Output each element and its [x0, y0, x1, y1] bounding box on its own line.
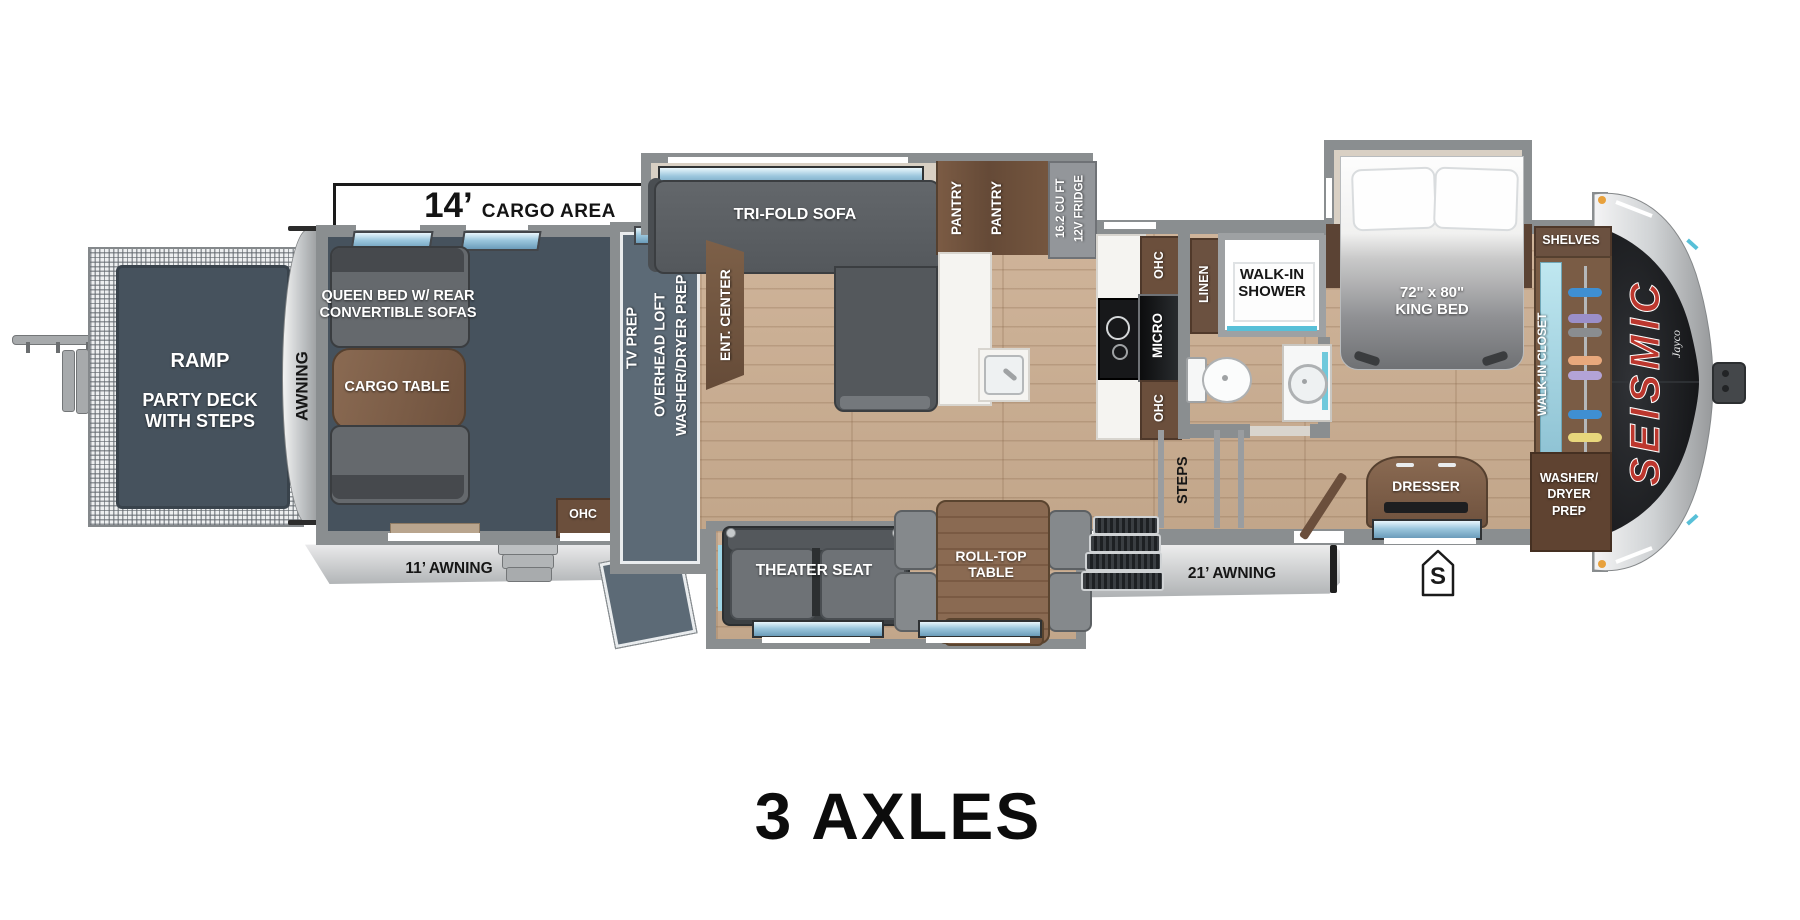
party-deck — [116, 265, 290, 509]
dresser-tv — [1384, 502, 1468, 513]
entry-step — [1093, 516, 1159, 535]
bedroom-window-sill — [1384, 538, 1476, 544]
garage-window-sill — [356, 224, 420, 230]
cargo-area-feet: 14’ — [424, 186, 473, 226]
slideout-window-sill — [762, 637, 870, 643]
bed-pillow — [1351, 167, 1437, 232]
pantry-label-2: PANTRY — [986, 166, 1008, 250]
bath-door-threshold — [1250, 426, 1310, 436]
hitch-pin-bolt — [1722, 385, 1729, 392]
bath-wall-left — [1178, 231, 1190, 439]
overhead-loft-label: OVERHEAD LOFT WASHER/DRYER PREP — [648, 245, 696, 465]
linen-label: LINEN — [1191, 240, 1217, 328]
page-title: 3 AXLES — [648, 780, 1148, 853]
hanger — [1568, 356, 1602, 365]
hanger — [1568, 433, 1602, 442]
sofa-window-sill — [668, 157, 908, 163]
top-wall-window — [1104, 222, 1156, 229]
hitch-pin-bolt — [1722, 370, 1729, 377]
rear-awning-cap-top — [288, 226, 318, 231]
party-deck-label: PARTY DECK WITH STEPS — [114, 390, 286, 431]
garage-step-tread — [506, 567, 552, 582]
kitchen-ohc-top-label: OHC — [1142, 238, 1176, 292]
s-marker-letter: S — [1430, 563, 1446, 590]
s-marker: S — [1420, 548, 1456, 598]
dinette-chair — [894, 510, 938, 570]
garage-window-sill — [466, 224, 528, 230]
pantry-label-1: PANTRY — [946, 166, 968, 250]
shower-label: WALK-IN SHOWER — [1225, 267, 1319, 300]
interior-step-riser — [1238, 430, 1244, 528]
accent-dash — [1686, 238, 1698, 250]
bed-slideout-window — [1326, 178, 1332, 218]
tri-fold-sofa-seat — [654, 180, 940, 274]
hanger — [1568, 410, 1602, 419]
bed-pillow — [1433, 167, 1519, 232]
interior-step-riser — [1214, 430, 1220, 528]
awning-21-label: 21’ AWNING — [1172, 565, 1292, 582]
slideout-window — [918, 620, 1042, 638]
bath-wall-bottom — [1310, 424, 1330, 438]
brand-sub-logo: Jayco — [1669, 330, 1683, 358]
dresser-handle — [1396, 463, 1414, 467]
floorplan-canvas: 14’ CARGO AREA RAMP PARTY DECK WITH STEP… — [0, 0, 1800, 920]
ramp-label: RAMP — [120, 350, 280, 373]
convertible-sofa-bottom-front — [332, 475, 464, 499]
entry-step — [1081, 571, 1164, 591]
ent-center-label: ENT. CENTER — [708, 252, 742, 378]
king-bed-label: 72" x 80" KING BED — [1384, 284, 1480, 319]
convertible-sofa-top-back — [332, 248, 464, 272]
stove-burner — [1106, 316, 1130, 340]
hitch-pin — [1712, 362, 1746, 404]
theater-seat-label: THEATER SEAT — [736, 562, 892, 580]
kitchen-ohc-bottom-label: OHC — [1142, 382, 1176, 434]
accent-dash — [1686, 514, 1698, 526]
theater-seat-back — [728, 530, 900, 550]
awning-21-end-cap — [1330, 545, 1337, 593]
rear-step-tread — [62, 350, 75, 412]
theater-seat-bolt — [726, 528, 736, 538]
brand-logo: SEISMIC — [1621, 278, 1668, 486]
fridge-label: 16.2 CU FT 12V FRIDGE — [1048, 163, 1093, 253]
queen-bed-label: QUEEN BED W/ REAR CONVERTIBLE SOFAS — [312, 288, 484, 321]
marker-light — [1598, 560, 1606, 568]
bath-sink — [1288, 364, 1328, 404]
cargo-area-text: CARGO AREA — [482, 201, 616, 223]
slideout-window — [752, 620, 884, 638]
marker-light — [1598, 196, 1606, 204]
dresser-label: DRESSER — [1390, 478, 1462, 494]
cargo-table-label: CARGO TABLE — [332, 379, 462, 396]
garage-ohc-label: OHC — [556, 507, 610, 521]
theater-seat-cushion — [730, 548, 816, 620]
entry-step — [1085, 552, 1162, 571]
theater-seat-console — [812, 548, 820, 616]
garage-door-opening — [388, 533, 480, 541]
tv-prep-label: TV PREP — [620, 255, 646, 420]
awning-11-label: 11’ AWNING — [384, 560, 514, 577]
hanger — [1568, 371, 1602, 380]
entry-step — [1089, 534, 1161, 553]
rear-steps-rail-post — [56, 342, 60, 353]
hanger — [1568, 314, 1602, 323]
kitchen-sink — [984, 355, 1024, 395]
tri-fold-sofa-chaise — [834, 266, 938, 412]
walk-in-closet-label: WALK-IN CLOSET — [1534, 288, 1552, 440]
washer-dryer-label: WASHER/ DRYER PREP — [1530, 470, 1608, 519]
bedroom-window — [1372, 519, 1482, 540]
hanger — [1568, 288, 1602, 297]
rear-awning-cap-bottom — [288, 520, 318, 525]
shelves-label: SHELVES — [1534, 233, 1608, 247]
shower-glass — [1227, 326, 1317, 331]
roll-top-table-label: ROLL-TOP TABLE — [944, 548, 1038, 580]
interior-step-riser — [1158, 430, 1164, 528]
interior-steps-label: STEPS — [1172, 436, 1196, 524]
rear-steps-rail-post — [26, 342, 30, 353]
slideout-window-sill — [926, 637, 1030, 643]
toilet-flush-dot — [1222, 375, 1228, 381]
garage-window — [460, 231, 541, 251]
dresser-handle — [1438, 463, 1456, 467]
stove-burner — [1112, 344, 1128, 360]
tri-fold-sofa-foot — [840, 396, 930, 409]
microwave-label: MICRO — [1140, 296, 1176, 376]
tri-fold-sofa-label: TRI-FOLD SOFA — [664, 206, 926, 224]
bath-sink-drain — [1302, 379, 1307, 384]
hanger — [1568, 328, 1602, 337]
